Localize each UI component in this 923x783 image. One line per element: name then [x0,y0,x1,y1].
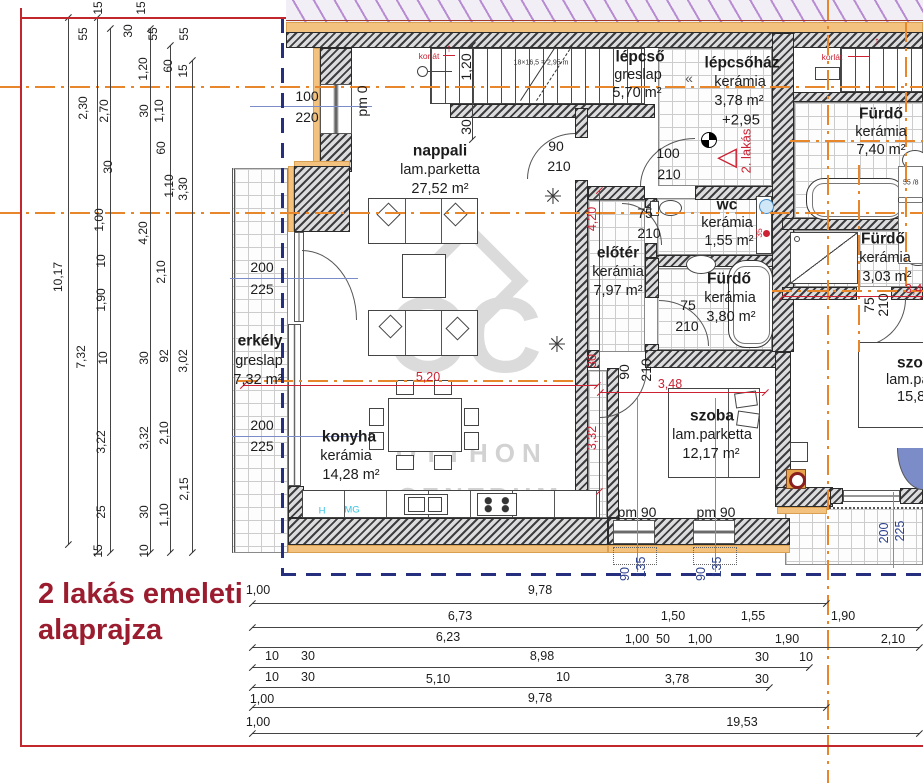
dim-label: 2,30 [77,96,89,119]
dim-line-bottom-5 [252,687,770,688]
dim-label: 10,17 [52,262,64,292]
wall-stairs-bottom [450,104,655,118]
border-red-left [20,8,22,745]
dim-label: 1,10 [158,503,170,526]
window-axis [893,492,894,568]
column-marker-circle [789,472,806,489]
wall-szoba2-bottom-a [830,488,843,504]
window-axis [637,398,638,572]
dim-label: 5,10 [426,673,450,686]
centerline-horizontal-1 [0,86,923,88]
dim-label: 10 [799,651,813,664]
window-pm90-1 [613,520,655,544]
centerline-horizontal-2 [0,212,923,214]
dim-line-left-1 [68,17,69,545]
coffee-table [402,254,446,298]
dim-label: 19,53 [726,716,757,729]
centerline-vertical-3 [905,22,907,292]
dim-label: 10 [265,650,279,663]
dim-label: 15 [177,64,189,77]
boundary-navy-horizontal [281,573,923,576]
dim-label: 30 [138,104,150,117]
dim-label: 9,78 [528,584,552,597]
railing-leader-line [848,56,870,57]
dim-label: 1,00 [246,584,270,597]
dim-line-bottom-2 [252,627,920,628]
dim-label: 30 [301,671,315,684]
wall-konyha-bottom [288,518,608,545]
floor-terrace [785,507,923,565]
dim-label: 10 [265,671,279,684]
dim-label: 1,00 [625,633,649,646]
dim-label: 2,70 [98,99,110,122]
centerline-horizontal-4 [772,290,923,292]
room-label-konyha: konyha [322,429,376,445]
dim-label: 60 [162,59,174,72]
bathtub-furdo2-inner [733,266,770,344]
dim-label: 1,10 [163,174,175,197]
dim-label: pm 0 [355,85,369,116]
dim-label: 30 [301,650,315,663]
insulation-terrace [777,507,827,514]
valve-red-icon [763,230,770,237]
chair [464,408,479,426]
dim-label: 30 [102,160,114,173]
dim-label: 1,55 [741,610,765,623]
page-title-line-2: alaprajza [38,614,162,647]
door-arc-balcony [302,250,357,320]
dim-label: 9,78 [528,692,552,705]
wall-furdo2-left-a [645,258,659,298]
shower-drain [794,236,800,242]
railing-leader-line [443,55,455,56]
wall-furdo3-bottom-a [782,287,857,300]
wall-right-core [772,33,794,352]
dim-label: 15 [92,1,104,14]
window-200x225-konyha [288,324,301,486]
dim-label: 3,02 [177,349,189,372]
dim-line-red-right [782,296,923,297]
bed-pillow [736,411,760,429]
dim-label: 1,90 [775,633,799,646]
centerline-vertical-1 [827,0,829,783]
dim-line-bottom-6 [252,707,827,708]
dim-label: 27,52 m² [411,182,468,197]
plant-icon: ✳ [548,334,566,356]
dim-label: 3,32 [138,426,150,449]
stove [477,493,517,516]
dim-label: 8,98 [530,650,554,663]
chair [434,455,452,470]
insulation-left-upper [313,48,320,172]
dim-line-bottom-7 [252,733,920,734]
chair [369,432,384,450]
border-red-top [20,17,286,19]
dim-label: 30 [755,651,769,664]
dim-label: 4,20 [137,221,149,244]
dim-label: 30 [138,351,150,364]
dim-label: 2,10 [155,260,167,283]
dim-line-red-520 [243,385,598,386]
kitchen-sink-basin [408,497,425,512]
window-100x220 [320,84,352,134]
dim-label: 14,28 m² [322,468,379,483]
dim-label: 2,10 [158,421,170,444]
window-axis [250,106,372,107]
kitchen-sink-basin [428,497,442,512]
window-200x225-terrace [843,490,900,502]
centerline-vertical-2 [858,165,860,352]
dim-label: 55 [77,27,89,40]
bed-line [728,389,729,477]
chair [396,455,414,470]
window-axis [232,436,360,437]
door-arc-nappali [527,133,575,179]
dim-label: 3,30 [177,177,189,200]
dim-line-red-vertical [599,190,600,492]
dim-label: 30 [138,505,150,518]
floor-erkely [232,168,288,553]
dim-line-left-3 [110,28,111,553]
wall-stairs2-bottom [790,92,923,102]
window-axis [715,398,716,572]
dim-label: 30 [459,119,473,135]
dim-line-left-5 [170,45,171,553]
dim-label: lam.parketta [400,163,480,178]
dim-label: 60 [155,141,167,154]
shower-furdo3 [790,232,858,284]
boundary-navy-vertical [281,18,284,575]
wall-terrace-top [775,487,833,507]
dim-label: kerámia [320,449,372,464]
dim-line-left-2 [97,17,98,553]
dim-label: 1,20 [137,57,149,80]
dim-label: 1,90 [831,610,855,623]
floor-plan-canvas: OC OTTHON CENTRUM [0,0,923,783]
wall-nappali-eloter-a [575,108,588,138]
dim-label: 15 [135,1,147,14]
border-red-bottom [20,745,923,747]
wall-wc-left-b [645,243,657,258]
window-pm90-2 [693,520,735,544]
dim-label: 1,50 [661,610,685,623]
wall-nappali-eloter-b [575,180,588,518]
chair [369,408,384,426]
page-title-line-1: 2 lakás emeleti [38,578,243,611]
dim-label: 2,15 [178,477,190,500]
dim-label: 30 [755,673,769,686]
window-sill-1 [613,547,657,565]
centerline-horizontal-3 [790,140,923,142]
kitchen-counter [302,490,600,518]
cabinet [898,166,923,198]
dim-label: 92 [158,349,170,362]
sink-furdo2 [686,255,716,274]
room-label-nappali: nappali [413,143,467,159]
bed-pillow [734,391,758,409]
wall-szoba2-bottom-b [900,488,923,504]
window-axis [230,278,358,279]
wall-terrace-left [775,352,791,488]
wall-szoba-top-b [645,350,790,368]
dim-label: 2,10 [881,633,905,646]
dim-label: 55 [178,27,190,40]
insulation-konyha-bottom [288,545,608,553]
door-arc-szoba2 [897,448,923,490]
wall-corner-left [294,166,350,232]
dim-label: 1,00 [246,716,270,729]
plant-icon: ✳ [544,186,562,208]
dim-line-left-4 [150,28,151,553]
dim-label: 10 [556,671,570,684]
dim-label: 50 [656,633,670,646]
dim-label: 6,23 [436,631,460,644]
dim-line-bottom-1 [252,603,827,604]
dim-label: 1,00 [250,693,274,706]
dim-line-left-6 [192,60,193,553]
dim-label: 7,32 [75,345,87,368]
dim-label: 1,00 [688,633,712,646]
dim-line-bottom-4 [252,667,810,668]
dim-label: 1,10 [153,99,165,122]
dim-line-red-348 [600,392,766,393]
door-arc-furdo3 [858,299,906,347]
dim-label: 30 [122,24,134,37]
dim-line-stairs [472,45,473,140]
dim-line-bottom-3 [252,647,920,648]
dim-label: pm 90 [697,505,736,519]
chair [464,432,479,450]
door-arc-lepcsohaz [640,138,695,186]
dim-label: 10 [97,351,109,364]
dim-label: 6,73 [448,610,472,623]
stair-start-line [428,71,452,72]
centerline-horizontal-5 [238,380,578,382]
dim-label: 3,78 [665,673,689,686]
survey-marker-icon [701,132,717,148]
bed-szoba-2 [858,342,923,428]
nightstand [790,442,808,462]
stair-start-circle [417,66,428,77]
dining-table [388,398,462,452]
